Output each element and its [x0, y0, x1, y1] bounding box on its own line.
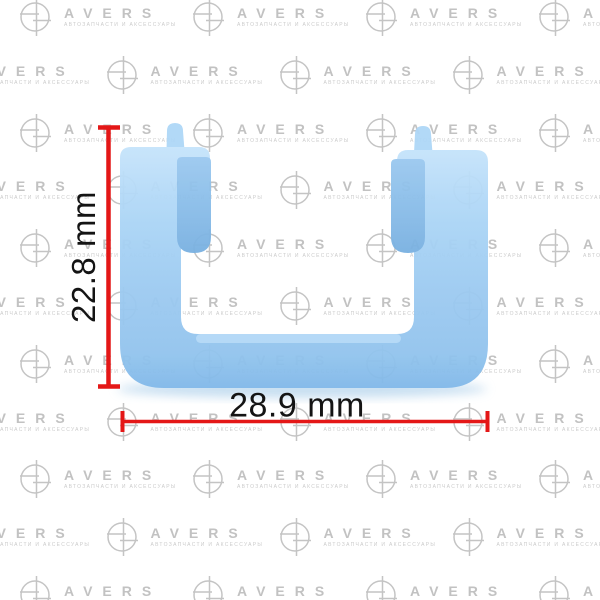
vertical-dimension-label: 22.8 mm	[65, 191, 103, 323]
horizontal-dimension-label: 28.9 mm	[229, 387, 365, 426]
product-image: AVERS АВТОЗАПЧАСТИ И АКСЕССУАРЫ AVERS АВ…	[0, 0, 600, 600]
